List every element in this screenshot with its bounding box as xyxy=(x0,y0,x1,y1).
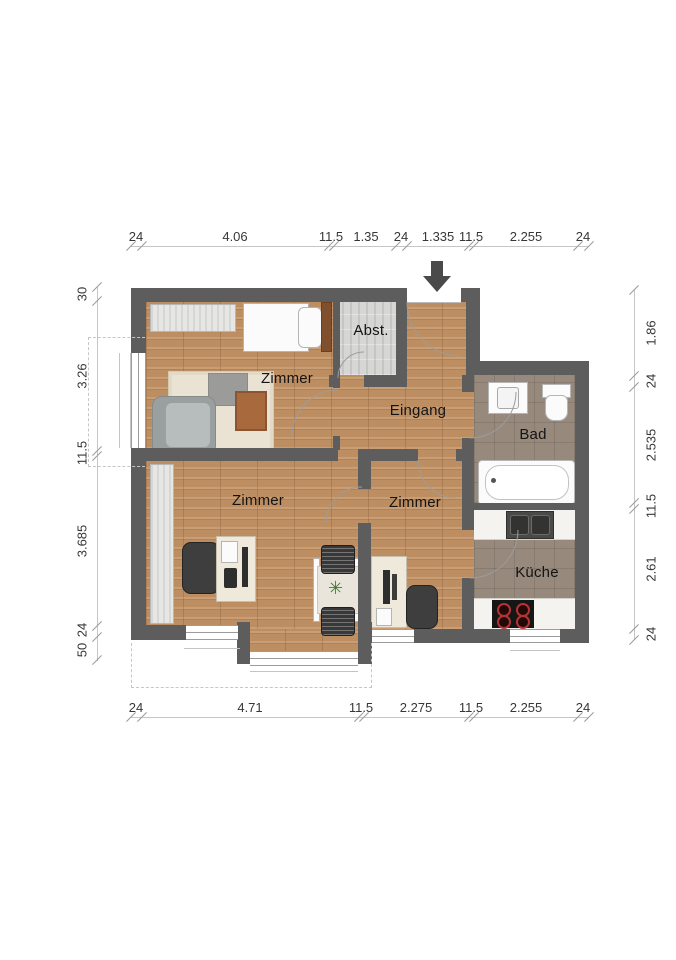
dim-top-4: 24 xyxy=(394,229,408,244)
dim-left-4: 24 xyxy=(75,623,90,637)
door-arc-zimmer-left xyxy=(326,487,362,523)
room-label-kueche: Küche xyxy=(515,564,559,581)
dim-top-7: 2.255 xyxy=(510,229,543,244)
dimension-line-top xyxy=(131,246,589,247)
dim-top-6: 11.5 xyxy=(459,229,483,244)
room-label-eingang: Eingang xyxy=(390,402,446,419)
dim-left-5: 50 xyxy=(75,643,90,657)
dim-bottom-0: 24 xyxy=(129,700,143,715)
door-arc-storage xyxy=(338,352,364,378)
room-label-zimmer-top: Zimmer xyxy=(261,370,313,387)
dim-right-4: 2.61 xyxy=(644,556,659,581)
dimension-line-right xyxy=(634,290,635,640)
dim-bottom-1: 4.71 xyxy=(237,700,262,715)
dim-left-2: 11.5 xyxy=(75,441,90,465)
dim-bottom-2: 11.5 xyxy=(349,700,373,715)
door-arc-bath xyxy=(470,392,516,438)
dimension-line-left xyxy=(97,287,98,661)
dim-left-3: 3.685 xyxy=(75,525,90,558)
dim-bottom-5: 2.255 xyxy=(510,700,543,715)
door-arc-kitchen xyxy=(470,530,518,578)
dim-bottom-4: 11.5 xyxy=(459,700,483,715)
door-arc-zimmer-top xyxy=(292,390,338,436)
dim-right-2: 2.535 xyxy=(644,429,659,462)
dim-top-1: 4.06 xyxy=(222,229,247,244)
dim-top-2: 11.5 xyxy=(319,229,343,244)
dim-bottom-3: 2.275 xyxy=(400,700,433,715)
room-label-zimmer-center: Zimmer xyxy=(389,494,441,511)
dim-right-3: 11.5 xyxy=(644,494,659,518)
dim-right-5: 24 xyxy=(644,627,659,641)
dim-top-5: 1.335 xyxy=(422,229,455,244)
dim-right-1: 24 xyxy=(644,374,659,388)
room-label-abstellraum: Abst. xyxy=(353,322,388,339)
dim-right-0: 1.86 xyxy=(644,320,659,345)
dim-left-1: 3.26 xyxy=(75,363,90,388)
room-label-bad: Bad xyxy=(519,426,546,443)
dimension-line-bottom xyxy=(131,717,589,718)
dim-top-0: 24 xyxy=(129,229,143,244)
floor-plan: ✳ xyxy=(0,0,676,960)
door-swing-overlay xyxy=(0,0,676,960)
door-arc-entrance xyxy=(407,302,461,356)
dim-left-0: 30 xyxy=(75,287,90,301)
room-label-zimmer-left: Zimmer xyxy=(232,492,284,509)
dim-top-3: 1.35 xyxy=(353,229,378,244)
dim-bottom-6: 24 xyxy=(576,700,590,715)
entrance-arrow-icon xyxy=(423,261,451,292)
dim-top-8: 24 xyxy=(576,229,590,244)
door-arc-zimmer-center xyxy=(418,460,456,498)
